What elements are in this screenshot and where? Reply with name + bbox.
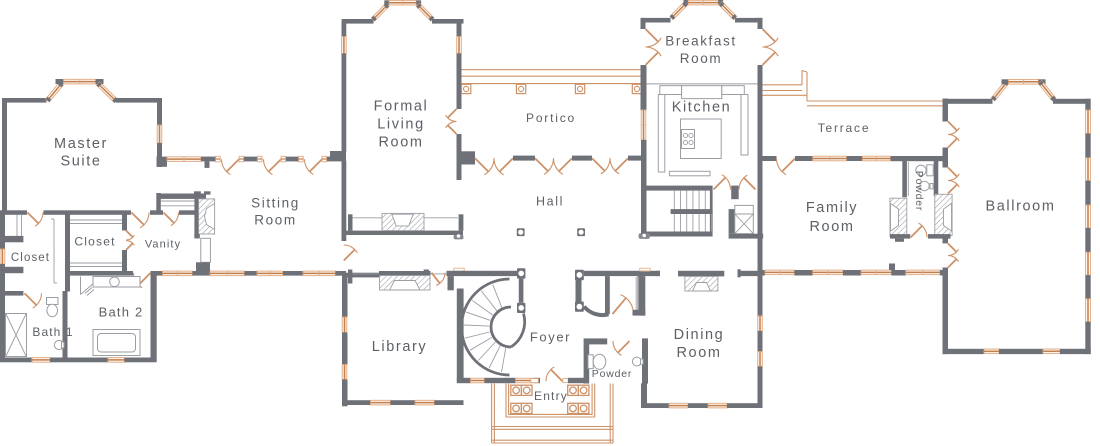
svg-text:Sitting: Sitting [251,196,300,211]
svg-text:Hall: Hall [536,195,564,209]
svg-text:Closet: Closet [74,235,115,249]
svg-text:Room: Room [680,51,722,66]
svg-text:Kitchen: Kitchen [672,100,732,116]
svg-text:Suite: Suite [60,154,101,170]
svg-text:Room: Room [809,219,854,235]
svg-text:Terrace: Terrace [818,121,871,135]
svg-text:Formal: Formal [374,99,429,115]
svg-text:Entry: Entry [534,389,568,403]
svg-text:Portico: Portico [526,111,576,125]
svg-text:Master: Master [54,136,108,152]
svg-text:Foyer: Foyer [530,330,571,345]
svg-text:Breakfast: Breakfast [665,34,736,49]
svg-text:Room: Room [676,345,721,361]
svg-text:Room: Room [378,135,423,151]
svg-text:Living: Living [377,117,425,133]
svg-text:Powder: Powder [913,171,925,211]
svg-text:Bath 1: Bath 1 [32,325,73,339]
svg-text:Bath 2: Bath 2 [99,305,144,320]
svg-text:Family: Family [806,200,858,216]
svg-text:Closet: Closet [11,252,50,264]
svg-text:Vanity: Vanity [145,239,181,251]
svg-text:Room: Room [254,213,296,228]
svg-text:Ballroom: Ballroom [985,199,1055,215]
svg-text:Library: Library [372,339,428,355]
svg-text:Dining: Dining [674,327,725,343]
svg-text:Powder: Powder [592,368,632,380]
